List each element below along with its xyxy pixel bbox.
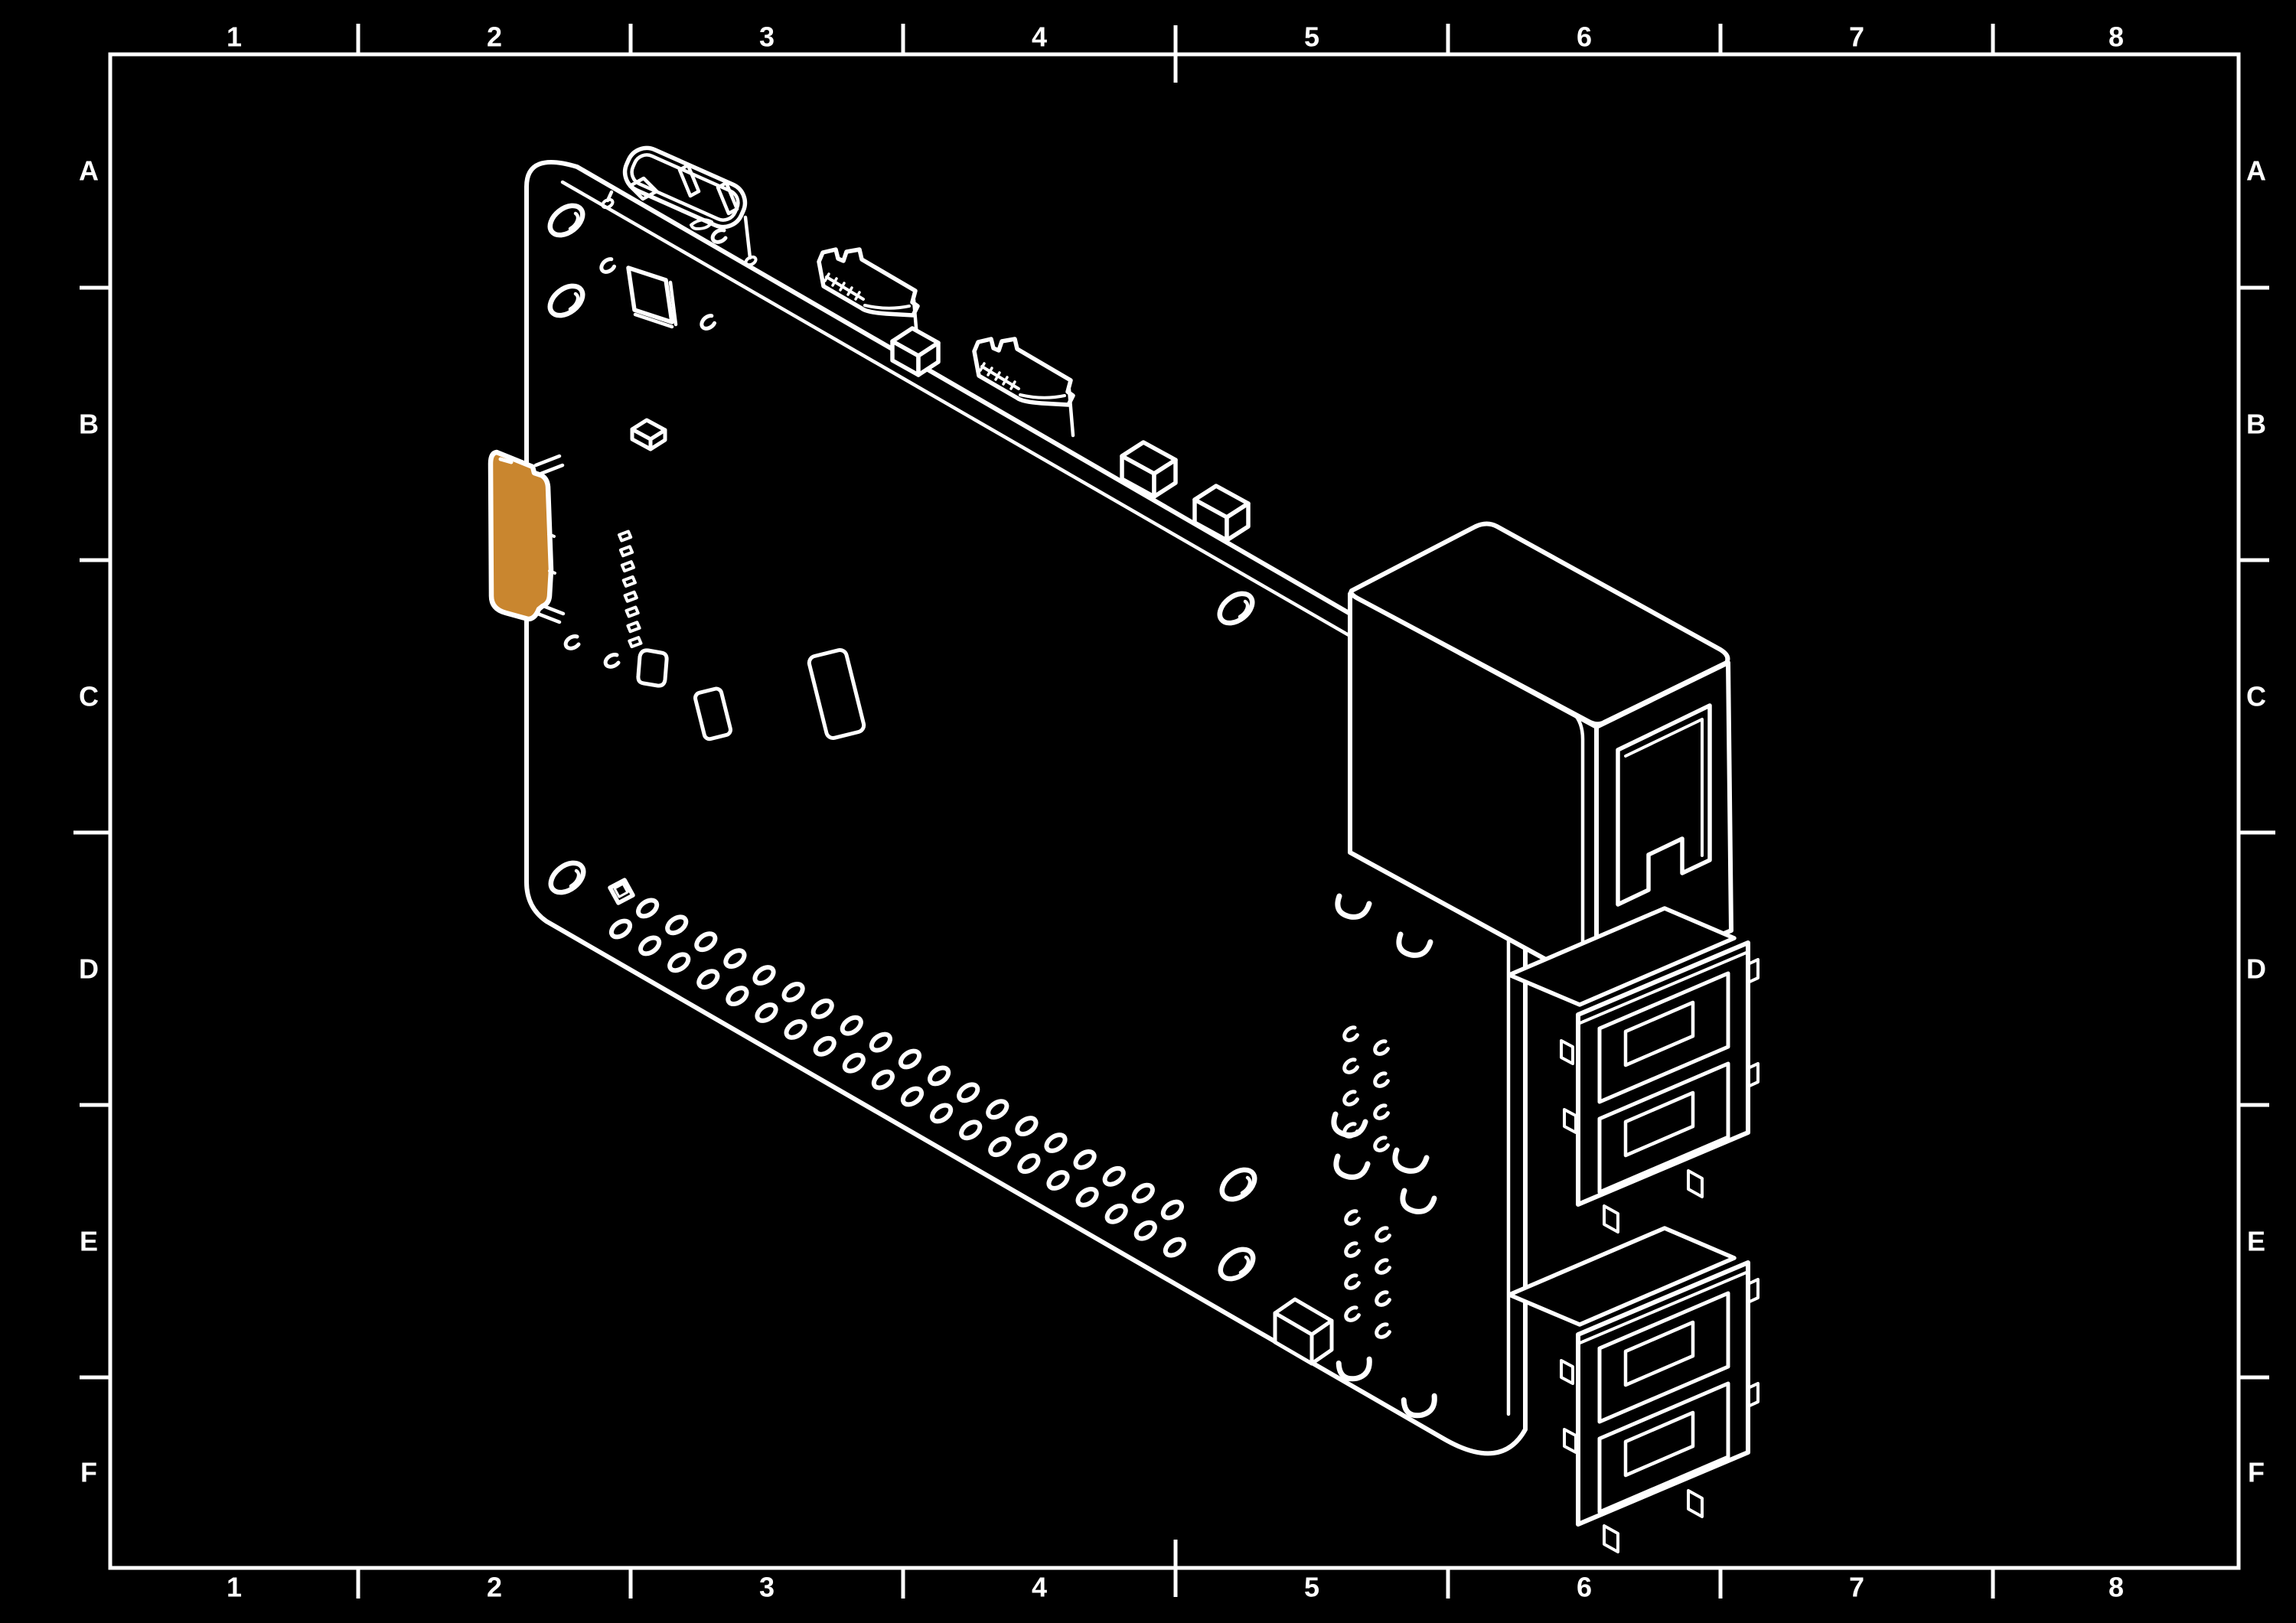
row-label-right-F: F xyxy=(2248,1457,2265,1488)
row-label-right-C: C xyxy=(2246,681,2266,712)
column-label-top-4: 4 xyxy=(1032,21,1047,53)
row-label-left-A: A xyxy=(79,155,99,187)
column-label-bottom-1: 1 xyxy=(227,1572,242,1603)
pcb-board xyxy=(491,142,1758,1552)
column-label-top-8: 8 xyxy=(2108,21,2124,53)
technical-drawing: 12345678 12345678 ABCDEF ABCDEF xyxy=(0,0,2296,1623)
row-label-left-B: B xyxy=(79,409,99,440)
drawing-sheet: 12345678 12345678 ABCDEF ABCDEF xyxy=(0,0,2296,1623)
connector-wing xyxy=(691,220,712,229)
grid-ticks-right xyxy=(2239,288,2275,1377)
column-label-bottom-8: 8 xyxy=(2108,1572,2124,1603)
column-label-bottom-4: 4 xyxy=(1032,1572,1047,1603)
column-label-top-1: 1 xyxy=(227,21,242,53)
row-label-right-B: B xyxy=(2246,409,2266,440)
row-label-right-A: A xyxy=(2246,155,2266,187)
column-label-top-6: 6 xyxy=(1577,21,1592,53)
column-label-bottom-6: 6 xyxy=(1577,1572,1592,1603)
row-label-left-E: E xyxy=(80,1226,98,1257)
connector-foot xyxy=(745,256,758,267)
row-label-left-C: C xyxy=(79,681,99,712)
sd-card xyxy=(491,452,555,619)
row-label-right-D: D xyxy=(2246,953,2266,985)
column-label-bottom-2: 2 xyxy=(487,1572,502,1603)
row-label-left-F: F xyxy=(80,1457,97,1488)
column-label-top-5: 5 xyxy=(1304,21,1319,53)
usb-port-stack-upper xyxy=(1509,908,1758,1232)
sd-card-body xyxy=(491,452,551,619)
row-labels-right: ABCDEF xyxy=(2246,155,2266,1488)
column-label-top-3: 3 xyxy=(759,21,775,53)
row-label-left-D: D xyxy=(79,953,99,985)
row-label-right-E: E xyxy=(2247,1226,2265,1257)
column-label-top-7: 7 xyxy=(1849,21,1864,53)
column-label-bottom-3: 3 xyxy=(759,1572,775,1603)
column-label-top-2: 2 xyxy=(487,21,502,53)
grid-ticks-left xyxy=(73,288,110,1377)
row-labels-left: ABCDEF xyxy=(79,155,99,1488)
column-label-bottom-5: 5 xyxy=(1304,1572,1319,1603)
usb-port-stack-lower xyxy=(1509,1228,1758,1552)
column-label-bottom-7: 7 xyxy=(1849,1572,1864,1603)
